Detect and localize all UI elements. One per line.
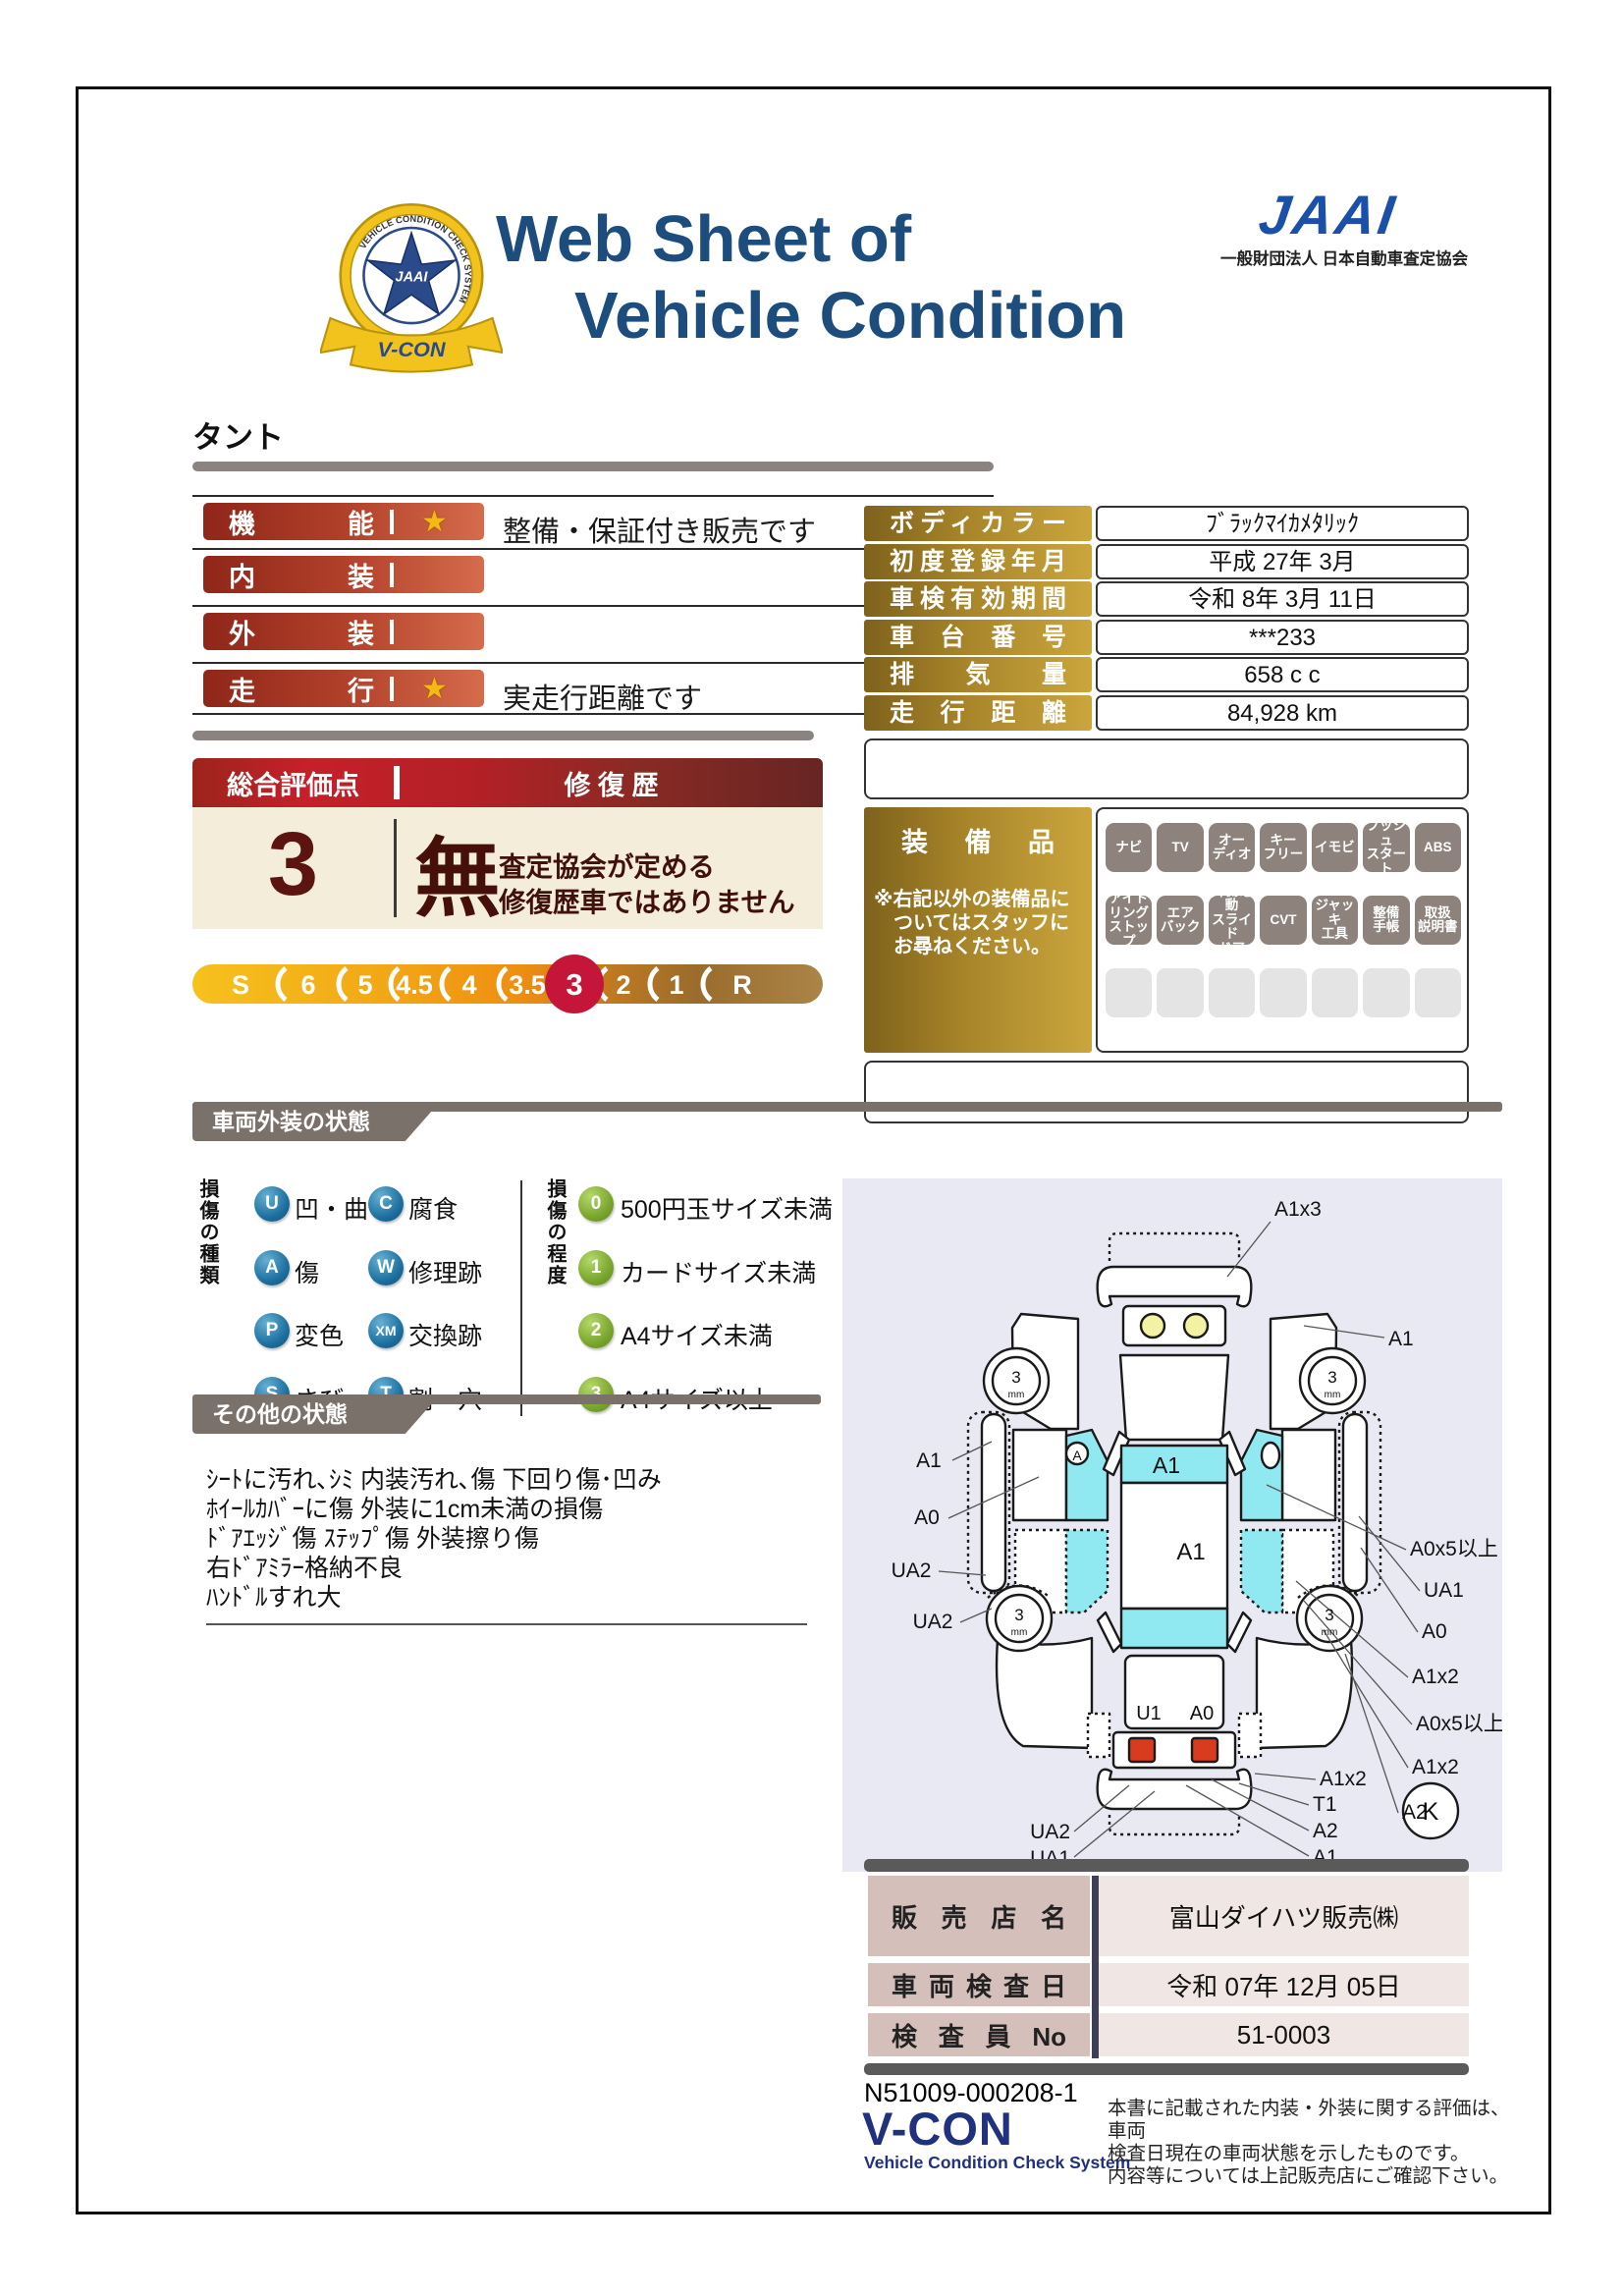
rating-bar-function: 機能 ★: [203, 503, 484, 540]
damage-note: UA2: [913, 1611, 953, 1633]
equipment-item: キー フリー: [1260, 823, 1306, 872]
sheet-title-line1: Web Sheet of: [496, 201, 911, 277]
damage-note: A1x2: [1412, 1666, 1459, 1688]
equipment-item: オー ディオ: [1209, 823, 1255, 872]
damage-note: A: [1072, 1448, 1082, 1463]
degree-code-0: 0: [578, 1186, 614, 1222]
other-condition-text: ｼｰﾄに汚れ､ｼﾐ 内装汚れ､傷 下回り傷･凹み ﾎｲｰﾙｶﾊﾞｰに傷 外装に1…: [206, 1465, 815, 1613]
right-rear-lamp-area: [1239, 1714, 1261, 1757]
sales-table-top-bar: [864, 1859, 1469, 1872]
jaai-organization: 一般財団法人 日本自動車査定協会: [1220, 246, 1468, 269]
info-label: 車検有効期間: [864, 581, 1092, 617]
damage-note: A1: [1176, 1539, 1205, 1565]
section-header-exterior: 車両外装の状態: [192, 1102, 440, 1141]
damage-code-C: C: [368, 1186, 404, 1222]
info-label: 初度登録年月: [864, 544, 1092, 579]
footer-disclaimer: 本書に記載された内装・外装に関する評価は、車両 検査日現在の車両状態を示したもの…: [1108, 2098, 1520, 2188]
svg-text:3: 3: [1011, 1368, 1020, 1387]
svg-text:mm: mm: [1008, 1390, 1025, 1400]
rating-divider: [390, 510, 394, 534]
score-header: 総合評価点 修 復 歴: [192, 758, 823, 807]
svg-text:1: 1: [669, 970, 683, 1000]
info-value: 84,928 km: [1096, 695, 1469, 731]
right-rear-quarter: [1257, 1638, 1352, 1748]
svg-text:mm: mm: [1322, 1627, 1338, 1638]
equipment-empty-slot: [1415, 968, 1461, 1017]
rating-divider: [390, 620, 394, 644]
damage-note: A2: [1313, 1820, 1338, 1842]
selected-score-label: 3: [566, 967, 582, 1002]
damage-code-XM: XM: [368, 1313, 404, 1348]
left-rear-lamp-area: [1088, 1714, 1109, 1757]
star-icon: ★: [421, 505, 448, 539]
sales-table-divider: [1092, 1876, 1099, 2058]
vcon-logo: V-CON: [862, 2102, 1013, 2156]
damage-note: A1x2: [1412, 1756, 1459, 1778]
sales-label: 検査員No: [868, 2013, 1090, 2056]
equipment-item: プッシュ スタート: [1363, 823, 1409, 872]
equipment-item: イモビ: [1312, 823, 1358, 872]
equipment-grid: ナビ TV オー ディオ キー フリー イモビ プッシュ スタート ABS アイ…: [1096, 807, 1469, 1053]
repair-note-line1: 査定協会が定める: [499, 845, 715, 884]
vehicle-name: タント: [192, 412, 284, 457]
left-rear-quarter: [997, 1638, 1092, 1748]
equipment-item: 片側電動 スライド ドア: [1209, 896, 1255, 945]
taillight-right: [1192, 1738, 1217, 1762]
damage-note: A0x5以上: [1410, 1538, 1498, 1560]
svg-text:6: 6: [300, 970, 315, 1000]
damage-code-U: U: [254, 1186, 290, 1222]
legend-divider: [520, 1180, 522, 1416]
equipment-item: ジャッキ 工具: [1312, 896, 1358, 945]
damage-kind-label: 凹・曲: [295, 1190, 368, 1226]
equipment-empty-slot: [1209, 968, 1255, 1017]
rating-label: 外装: [229, 613, 374, 651]
rating-separator: [192, 495, 994, 497]
equipment-empty-slot: [1312, 968, 1358, 1017]
info-label: 走行距離: [864, 695, 1092, 731]
rating-label: 機能: [229, 503, 374, 541]
svg-text:3.5: 3.5: [509, 970, 546, 1000]
info-value: ﾌﾞﾗｯｸﾏｲｶﾒﾀﾘｯｸ: [1096, 506, 1469, 541]
degree-label: A4サイズ未満: [621, 1317, 773, 1352]
damage-kind-label: 傷: [295, 1254, 319, 1289]
sales-value: 富山ダイハツ販売㈱: [1099, 1876, 1469, 1956]
equipment-empty-slot: [1157, 968, 1203, 1017]
damage-note: UA2: [892, 1559, 932, 1582]
equipment-item: 取扱 説明書: [1415, 896, 1461, 945]
damage-note: U1: [1136, 1703, 1162, 1724]
damage-note: A1: [916, 1449, 942, 1472]
damage-note: A1x3: [1274, 1198, 1322, 1221]
svg-text:S: S: [232, 970, 249, 1000]
sales-value: 令和 07年 12月 05日: [1099, 1963, 1469, 2006]
headlight-left: [1141, 1314, 1164, 1338]
svg-text:R: R: [732, 970, 752, 1000]
equipment-item: アイド リング ストップ: [1106, 896, 1152, 945]
info-value: 658 c c: [1096, 657, 1469, 692]
section-header-other: その他の状態: [192, 1394, 440, 1434]
divider-rule-top: [192, 462, 994, 471]
equipment-remarks-box: [864, 1061, 1469, 1123]
repair-note-line2: 修復歴車ではありません: [499, 880, 795, 919]
right-sill: [1343, 1414, 1367, 1591]
rating-divider: [390, 677, 394, 701]
info-extra-box: [864, 738, 1469, 799]
right-door-mirror: [1262, 1443, 1279, 1468]
damage-note: A1: [1388, 1328, 1414, 1350]
equipment-title: 装備品: [864, 821, 1092, 859]
damage-note: A1: [1153, 1452, 1180, 1478]
badge-ribbon-label: V-CON: [377, 337, 446, 361]
damage-note: A0: [1422, 1620, 1447, 1643]
svg-text:3: 3: [1327, 1368, 1336, 1387]
svg-text:3: 3: [1325, 1606, 1333, 1624]
svg-text:5: 5: [357, 970, 372, 1000]
equipment-item: ナビ: [1106, 823, 1152, 872]
equipment-item: CVT: [1260, 896, 1306, 945]
sales-value: 51-0003: [1099, 2013, 1469, 2056]
equipment-empty-slot: [1260, 968, 1306, 1017]
sales-label: 車両検査日: [868, 1963, 1090, 2006]
damage-note: UA1: [1424, 1579, 1464, 1602]
damage-kind-label: 交換跡: [408, 1317, 482, 1352]
rating-bar-mileage: 走行 ★: [203, 670, 484, 707]
score-header-right: 修 復 歴: [400, 764, 823, 802]
score-header-left: 総合評価点: [192, 764, 394, 802]
divider-rule-mid: [192, 731, 814, 740]
rear-window-damage-band: [1121, 1609, 1227, 1648]
info-label: 排気量: [864, 657, 1092, 692]
rating-label: 走行: [229, 670, 374, 708]
info-value: 平成 27年 3月: [1096, 544, 1469, 579]
degree-label: 500円玉サイズ未満: [621, 1190, 833, 1226]
left-sill: [982, 1414, 1005, 1591]
svg-text:4: 4: [461, 970, 476, 1000]
damage-note: UA2: [1030, 1821, 1070, 1843]
svg-text:4.5: 4.5: [396, 970, 433, 1000]
score-scale: S 6 5 4.5 4 3.5 2 1 R 3: [192, 941, 823, 1017]
svg-text:2: 2: [616, 970, 630, 1000]
damage-kind-label: 修理跡: [408, 1254, 482, 1289]
overall-score-value: 3: [192, 813, 394, 916]
sales-label-text: 販売店名: [892, 1898, 1066, 1935]
damage-code-W: W: [368, 1250, 404, 1285]
info-value: ***233: [1096, 620, 1469, 655]
equipment-empty-slot: [1363, 968, 1409, 1017]
info-label: 車台番号: [864, 620, 1092, 655]
car-damage-diagram: A1x3 A1 A1 A0 UA2 UA2 A0x5以上 UA1 A0 A1x2…: [842, 1178, 1502, 1872]
star-icon: ★: [421, 672, 448, 706]
degree-code-2: 2: [578, 1313, 614, 1348]
front-panel: [1123, 1306, 1225, 1345]
damage-note: A1x2: [1320, 1768, 1367, 1790]
equipment-item: エア バック: [1157, 896, 1203, 945]
equipment-note: ※右記以外の装備品に ついてはスタッフに お尋ねください。: [874, 888, 1069, 958]
rating-bar-exterior: 外装: [203, 613, 484, 650]
vcon-badge-logo: VEHICLE CONDITION CHECK SYSTEM JAAI V-CO…: [320, 196, 503, 383]
rating-label: 内装: [229, 556, 374, 594]
equipment-item: 整備 手帳: [1363, 896, 1409, 945]
rating-divider: [390, 563, 394, 587]
damage-kind-axis: 損傷の種類: [193, 1178, 222, 1286]
right-front-door: [1282, 1430, 1335, 1520]
rating-note: 整備・保証付き販売です: [503, 509, 816, 550]
score-body-divider: [394, 819, 397, 917]
vehicle-condition-sheet: VEHICLE CONDITION CHECK SYSTEM JAAI V-CO…: [0, 0, 1623, 2296]
headlight-right: [1184, 1314, 1208, 1338]
svg-text:mm: mm: [1011, 1627, 1028, 1638]
equipment-item: TV: [1157, 823, 1203, 872]
score-body: 3 無 査定協会が定める 修復歴車ではありません: [192, 807, 823, 929]
damage-note: A0: [1190, 1703, 1214, 1724]
sheet-title-line2: Vehicle Condition: [574, 278, 1126, 354]
degree-label: カードサイズ未満: [621, 1254, 816, 1289]
damage-note: A0: [914, 1506, 940, 1529]
rating-note: 実走行距離です: [503, 676, 702, 717]
badge-star-label: JAAI: [396, 270, 429, 286]
svg-text:3: 3: [1014, 1606, 1023, 1624]
left-front-door: [1013, 1430, 1066, 1520]
svg-text:mm: mm: [1325, 1390, 1341, 1400]
info-label: ボディカラー: [864, 506, 1092, 541]
degree-code-1: 1: [578, 1250, 614, 1285]
equipment-empty-slot: [1106, 968, 1152, 1017]
equipment-item: ABS: [1415, 823, 1461, 872]
rating-bar-interior: 内装: [203, 556, 484, 593]
info-value: 令和 8年 3月 11日: [1096, 581, 1469, 617]
damage-code-A: A: [254, 1250, 290, 1285]
damage-note: A0x5以上: [1416, 1713, 1502, 1735]
damage-code-P: P: [254, 1313, 290, 1348]
sales-label: 販売店名: [868, 1876, 1090, 1956]
damage-degree-axis: 損傷の程度: [541, 1178, 569, 1286]
damage-note: T1: [1313, 1793, 1337, 1816]
damage-kind-label: 変色: [295, 1317, 344, 1352]
repair-history-value: 無: [414, 809, 501, 934]
roof: [1121, 1483, 1227, 1609]
hood: [1120, 1355, 1228, 1440]
taillight-left: [1129, 1738, 1155, 1762]
sales-label-text: 車両検査日: [892, 1967, 1066, 2003]
equipment-label-cell: 装備品 ※右記以外の装備品に ついてはスタッフに お尋ねください。: [864, 807, 1092, 1053]
sales-table-bottom-bar: [864, 2063, 1469, 2075]
k-marker: K: [1423, 1798, 1439, 1826]
jaai-wordmark: JAAI: [1255, 183, 1401, 246]
other-underline: [206, 1623, 807, 1625]
vcon-subtitle: Vehicle Condition Check System: [864, 2153, 1130, 2173]
damage-kind-label: 腐食: [408, 1190, 458, 1226]
sales-label-text: 検査員No: [892, 2017, 1066, 2053]
